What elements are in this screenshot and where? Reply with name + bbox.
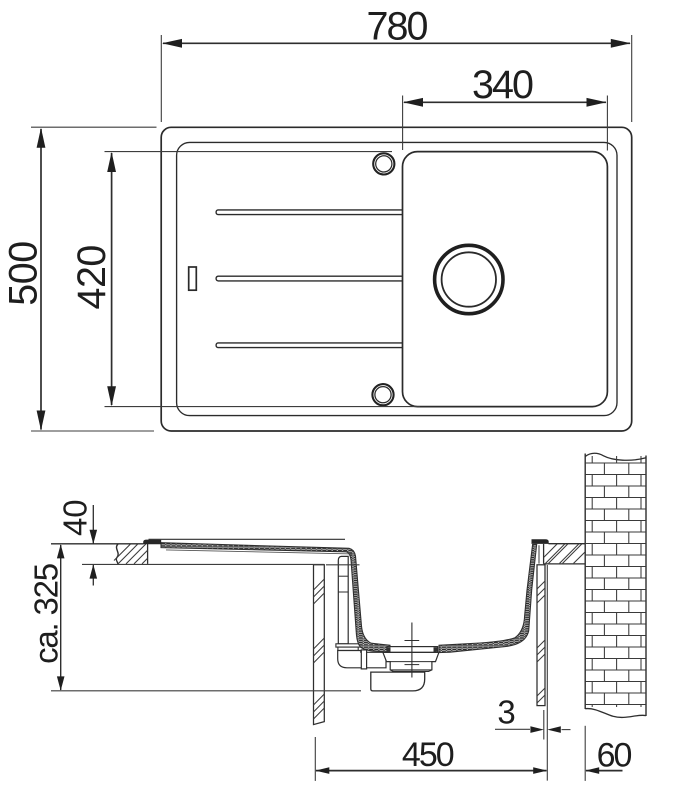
svg-text:3: 3: [497, 694, 515, 731]
svg-text:340: 340: [472, 63, 533, 107]
svg-text:420: 420: [70, 245, 114, 309]
svg-text:450: 450: [402, 736, 454, 774]
svg-text:60: 60: [597, 736, 632, 774]
svg-text:780: 780: [367, 5, 428, 49]
svg-text:500: 500: [1, 241, 45, 305]
svg-text:40: 40: [57, 499, 94, 536]
svg-text:ca. 325: ca. 325: [27, 564, 64, 664]
